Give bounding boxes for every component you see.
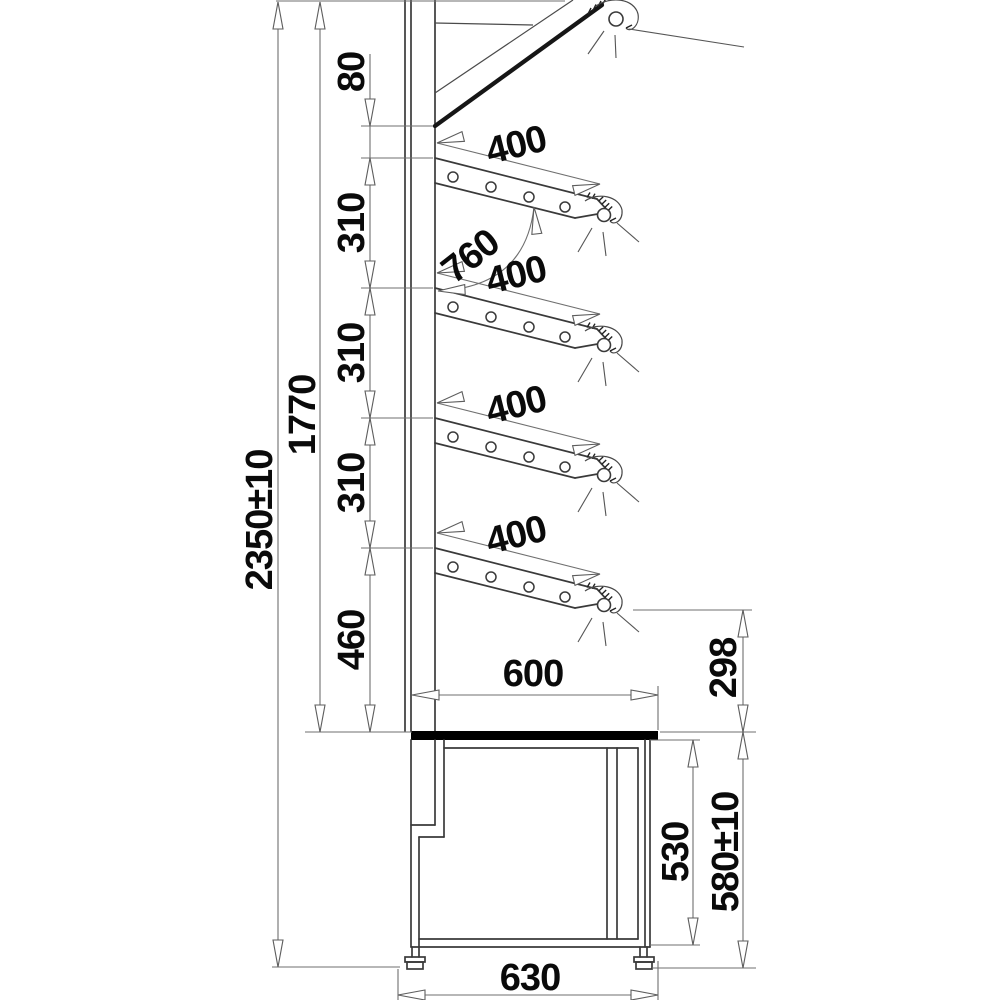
label-shelf3-depth: 400 [482,378,551,433]
display-case-side-view: 2350±10 1770 80 310 310 310 460 400 400 … [0,0,1000,1000]
counter-top [411,731,658,740]
label-front-height: 298 [703,638,745,698]
label-base-depth: 630 [500,957,560,999]
label-shelf4-depth: 400 [482,508,551,563]
dimension-labels: 2350±10 1770 80 310 310 310 460 400 400 … [239,52,747,999]
canopy-lamp [588,0,744,58]
technical-drawing: 2350±10 1770 80 310 310 310 460 400 400 … [0,0,1000,1000]
base-cabinet [405,731,658,969]
label-shelf1-depth: 400 [482,118,551,173]
label-base-height: 580±10 [705,792,747,913]
left-foot [405,947,425,969]
canopy [435,0,744,126]
dim-inner-height [315,2,325,732]
label-gap-top: 80 [331,52,373,92]
label-pitch-1: 310 [331,193,373,253]
back-panel [405,0,435,731]
label-overall-height: 2350±10 [239,450,281,591]
label-inner-height: 1770 [282,375,324,456]
label-pitch-2: 310 [331,323,373,383]
right-foot [634,947,654,969]
label-gap-bottom: 460 [331,610,373,670]
label-pitch-3: 310 [331,453,373,513]
label-counter-depth: 600 [503,653,563,695]
label-base-inner-height: 530 [655,822,697,882]
